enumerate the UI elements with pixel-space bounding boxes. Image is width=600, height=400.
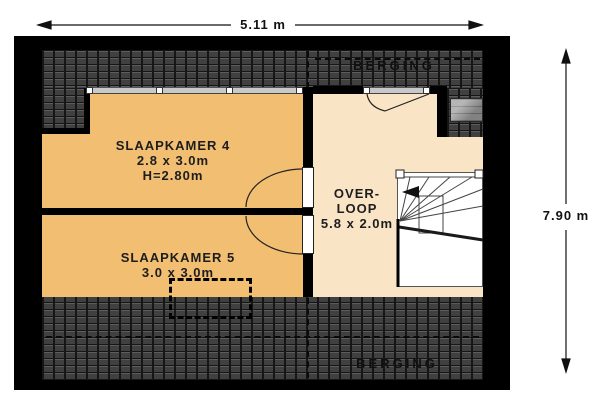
bedroom4-ceiling-height: H=2.80m [143,169,204,182]
door-frame-bedroom4 [302,167,314,208]
window-mullion [296,87,303,94]
landing-name-line1: OVER- [334,187,380,200]
bedroom4-size: 2.8 x 3.0m [137,154,209,167]
arrow-left-icon [38,21,51,29]
bedroom5-size: 3.0 x 3.0m [142,266,214,279]
skylight [450,98,483,122]
dashed-headroom-line-bottom [46,336,479,338]
wall-left-notch-horizontal [42,128,90,134]
wall-between-bedrooms [42,208,313,215]
window-mullion [226,87,233,94]
berging-bottom-label: BERGING [356,357,438,370]
arrow-down-icon [562,359,570,372]
arrow-up-icon [562,50,570,63]
bedroom5-name: SLAAPKAMER 5 [121,251,236,264]
dashed-wall-line-bottom [307,298,309,378]
arrow-right-icon [469,21,482,29]
roof-notch-left [42,88,84,129]
window-mullion [86,87,93,94]
wall-right-notch [437,88,447,137]
window-mullion [156,87,163,94]
height-dimension-label: 7.90 m [540,209,592,223]
door-jamb [423,87,430,94]
landing-name-line2: LOOP [337,202,378,215]
width-dimension-label: 5.11 m [237,18,289,32]
staircase [397,172,483,287]
berging-top-label: BERGING [353,59,435,72]
door-jamb [363,87,370,94]
wall-landing-top-left [313,86,363,94]
floor-plan: SLAAPKAMER 4 2.8 x 3.0m H=2.80m SLAAPKAM… [0,0,600,400]
wall-landing-top-right [430,86,447,94]
dashed-dormer-outline [169,278,252,319]
dashed-wall-line-top [307,51,309,88]
door-frame-bedroom5 [302,215,314,254]
bedroom4-name: SLAAPKAMER 4 [116,139,231,152]
door-band-berging [363,87,430,94]
landing-size: 5.8 x 2.0m [321,217,393,230]
window-band-bedroom4 [89,87,303,94]
